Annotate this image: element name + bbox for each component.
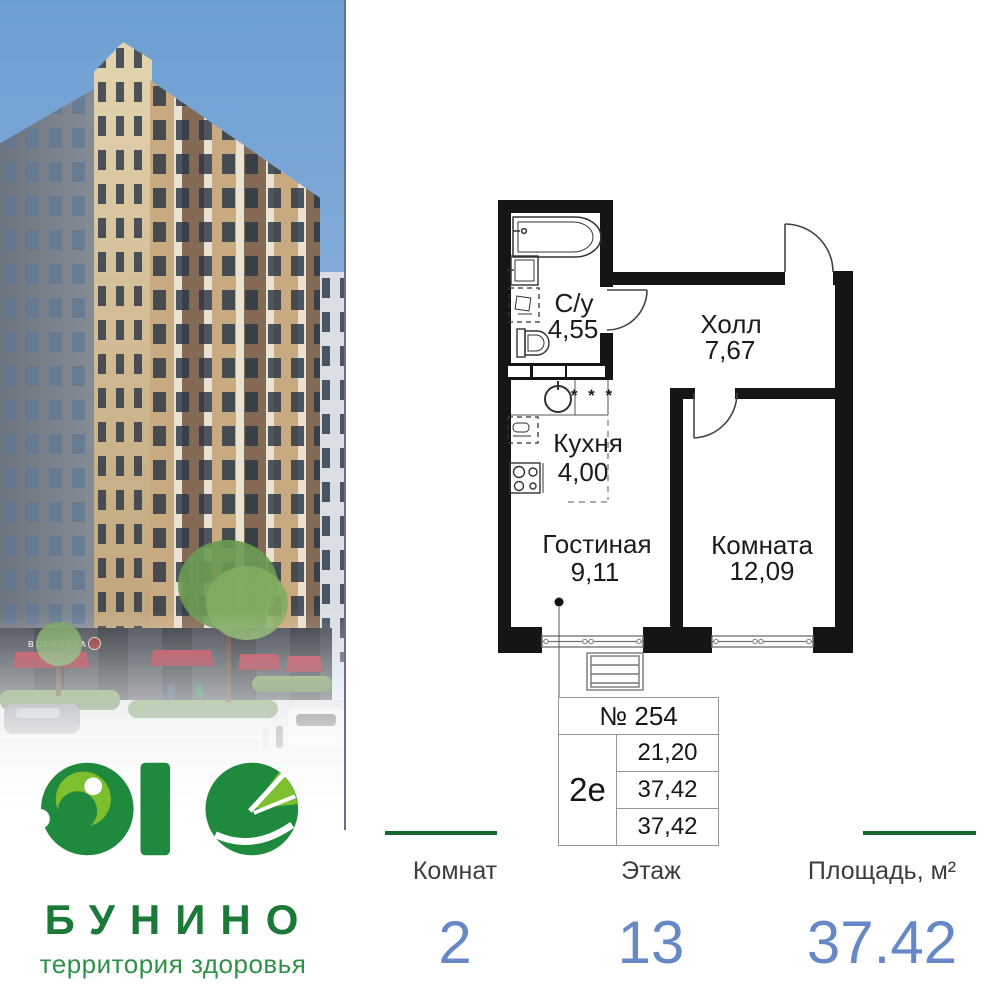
room-door-arc [694, 393, 737, 438]
kitchen-vent-symbol: * * * [571, 386, 615, 405]
background-tower [318, 272, 344, 662]
unit-type: 2е [559, 735, 617, 845]
unit-area-total: 37,42 [617, 771, 718, 808]
stat-divider-area [863, 831, 976, 835]
wardrobe-niches [508, 366, 605, 377]
stat-label-area: Площадь, м² [792, 857, 972, 886]
ac-basket [587, 653, 643, 690]
stove-icon [510, 463, 543, 493]
room-area-kitchen: 4,00 [558, 457, 609, 487]
room-label-living: Гостиная [542, 529, 651, 559]
apartment-card: BUCKSSTAR [0, 0, 1000, 1000]
stat-label-floor: Этаж [561, 857, 741, 886]
washing-machine-icon [509, 288, 539, 322]
stat-value-area: 37.42 [792, 908, 972, 977]
logo-letter-k-icon [140, 763, 170, 856]
room-area-bathroom: 4,55 [548, 314, 599, 344]
unit-area-living: 21,20 [617, 735, 718, 771]
unit-info-table: № 254 2е 21,20 37,42 37,42 [558, 697, 719, 846]
plan-walls [498, 200, 853, 653]
entrance-door-arc [785, 224, 833, 272]
room-label-kitchen: Кухня [553, 428, 623, 458]
building-photo: BUCKSSTAR [0, 0, 346, 830]
stat-divider-rooms [385, 831, 497, 835]
eco-logo-mark [40, 758, 306, 860]
left-facade-windows [0, 88, 96, 640]
kitchen-sink-icon [545, 381, 571, 412]
room-area-hall: 7,67 [705, 335, 756, 365]
logo-letter-e-icon [40, 763, 134, 856]
building-photo-panel: BUCKSSTAR [0, 0, 346, 1000]
brand-name: БУНИНО [0, 896, 346, 944]
fridge-icon [508, 417, 538, 443]
pillar-windows [94, 42, 152, 642]
bath-sink-icon [507, 256, 538, 285]
logo-letter-o-leaf-icon [206, 763, 299, 856]
toilet-icon [517, 329, 549, 357]
bathroom-door-arc [607, 290, 647, 330]
brand-tagline: территория здоровья [0, 949, 346, 980]
room-area-living: 9,11 [571, 557, 620, 587]
stat-value-rooms: 2 [365, 908, 545, 977]
building-corner-pillar [94, 42, 152, 642]
tower-windows [318, 272, 344, 662]
building-left-facade [0, 88, 96, 640]
room-area-bedroom: 12,09 [729, 556, 794, 586]
floor-plan: * * * С/у 4,55 Холл 7,67 Кухня 4,00 Гост… [480, 190, 875, 702]
stat-value-floor: 13 [561, 908, 741, 977]
stat-label-rooms: Комнат [365, 857, 545, 886]
unit-marker-dot [555, 598, 564, 607]
unit-number: № 254 [559, 698, 718, 735]
unit-area-reduced: 37,42 [617, 808, 718, 845]
bathtub-icon [513, 217, 601, 257]
